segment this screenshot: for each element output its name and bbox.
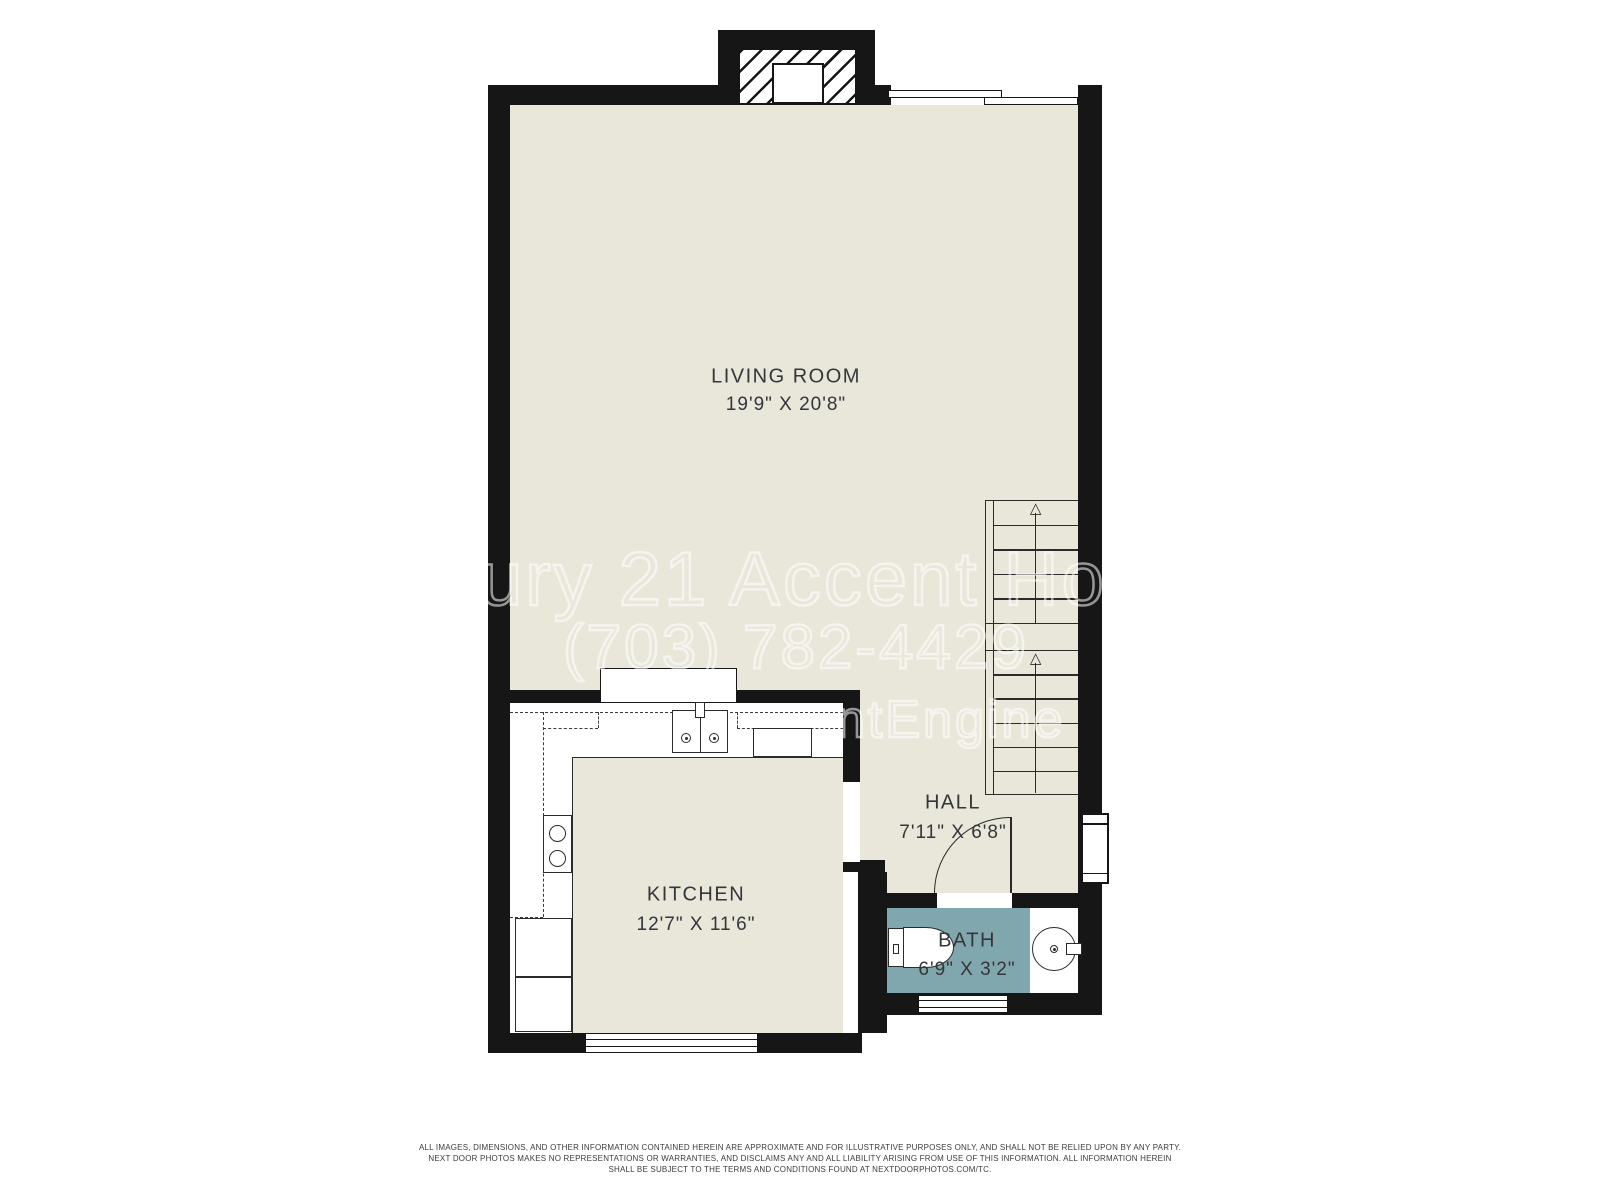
stairs: △ △ (985, 500, 1078, 795)
hall-bath-door-opening (937, 893, 1012, 908)
door-leaf (1010, 817, 1012, 893)
disclaimer-line-3: SHALL BE SUBJECT TO THE TERMS AND CONDIT… (0, 1164, 1600, 1175)
stair-stringer-line (993, 500, 994, 795)
kitchen-hall-door-opening (843, 782, 860, 862)
up-arrow-icon: △ (1030, 501, 1042, 516)
kitchen-counter-cabinet (515, 977, 572, 1032)
left-wall (488, 85, 510, 1053)
kitchen-side-nook (843, 872, 858, 1033)
stair-direction-line (1035, 663, 1036, 793)
living-room-dims: 19'9" X 20'8" (726, 394, 846, 416)
hall-dims: 7'11" X 6'8" (899, 822, 1006, 844)
toilet-flush-button (893, 944, 899, 954)
stove (543, 815, 572, 873)
top-wall-left (488, 85, 720, 105)
cabinet-dash-line (737, 712, 738, 728)
kitchen-faucet (695, 702, 705, 718)
hall-label: HALL (925, 792, 981, 815)
up-arrow-icon: △ (1030, 651, 1042, 666)
peninsula-counter (600, 668, 737, 703)
bath-faucet (1066, 943, 1082, 955)
bath-label: BATH (938, 930, 996, 953)
disclaimer-line-2: NEXT DOOR PHOTOS MAKES NO REPRESENTATION… (0, 1153, 1600, 1164)
bath-window (918, 995, 1008, 1013)
stair-tread (985, 623, 1078, 624)
entry-door (1081, 813, 1109, 884)
bath-dims: 6'9" X 3'2" (918, 959, 1015, 981)
cabinet-dash-line (598, 712, 599, 728)
stair-outer-edge (985, 500, 986, 795)
disclaimer-line-1: ALL IMAGES, DIMENSIONS, AND OTHER INFORM… (0, 1142, 1600, 1153)
dishwasher (753, 728, 812, 757)
living-room-label: LIVING ROOM (711, 366, 861, 389)
stair-tread (985, 794, 1078, 795)
kitchen-dims: 12'7" X 11'6" (637, 914, 756, 936)
firebox (772, 63, 824, 104)
kitchen-counter-cabinet (515, 918, 572, 977)
cabinet-dash-line (543, 728, 598, 729)
kitchen-window (585, 1033, 758, 1053)
sliding-door-panel-right (984, 97, 1078, 105)
kitchen-label: KITCHEN (647, 884, 745, 907)
stair-direction-line (1035, 513, 1036, 623)
kitchen-east-wall (843, 690, 860, 782)
floor-plan-page: △ △ LIVING ROOM 19'9 (0, 0, 1600, 1200)
